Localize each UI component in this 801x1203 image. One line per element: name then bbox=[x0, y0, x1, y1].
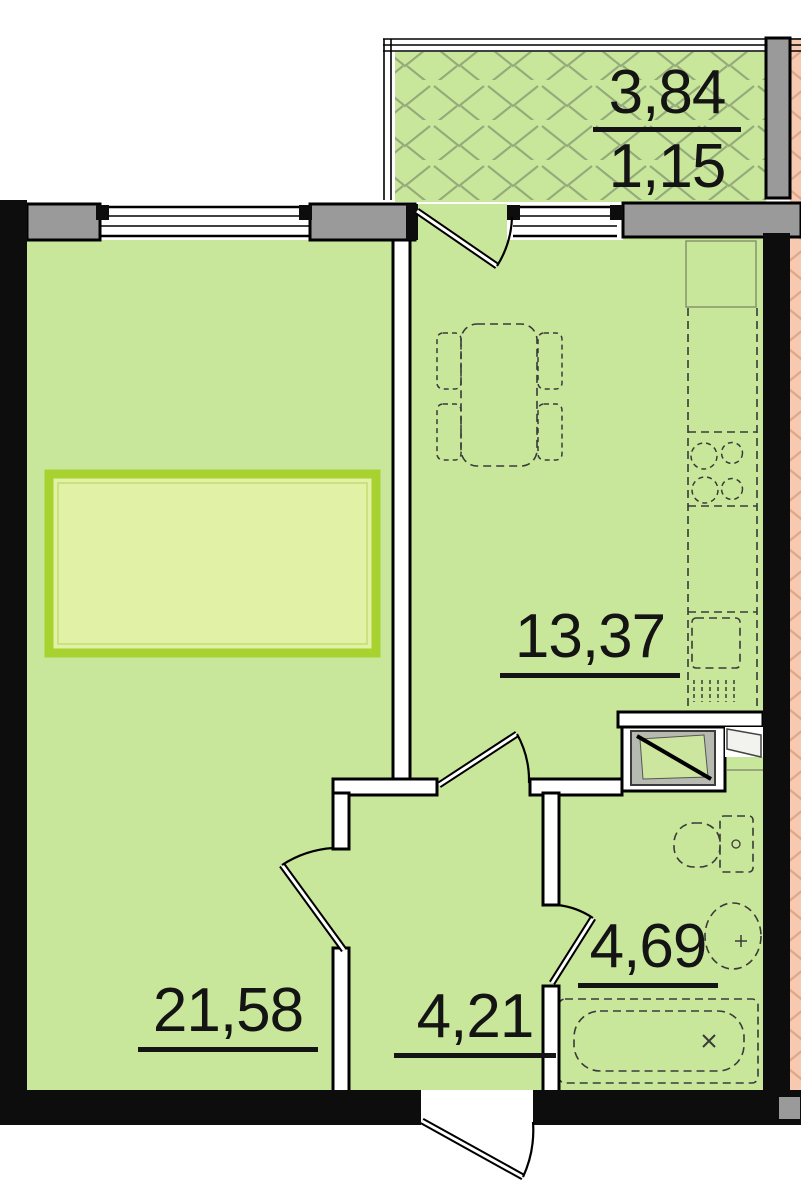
highlight-rect bbox=[49, 474, 376, 653]
wall-pier bbox=[310, 204, 415, 240]
bathroom-area-label: 4,69 bbox=[578, 916, 718, 988]
wall-pier bbox=[27, 204, 100, 240]
window-post bbox=[610, 205, 623, 220]
hall-area-label: 4,21 bbox=[394, 986, 556, 1058]
balcony-area-reduced: 1,15 bbox=[593, 132, 741, 198]
neighbor-balcony bbox=[790, 38, 801, 1090]
kitchen-area-label: 13,37 bbox=[500, 606, 680, 678]
entrance-door bbox=[422, 1121, 533, 1177]
room-area-label: 21,58 bbox=[138, 980, 318, 1052]
top-wall bbox=[27, 203, 801, 240]
window-post bbox=[299, 205, 312, 220]
balcony-area-total: 3,84 bbox=[593, 62, 741, 132]
gray-wall bbox=[623, 203, 801, 237]
balcony-divider-wall bbox=[766, 38, 790, 198]
balcony-area-label: 3,84 1,15 bbox=[593, 62, 741, 198]
floor-plan: 3,84 1,15 13,37 21,58 4,21 4,69 bbox=[0, 0, 801, 1203]
window-post bbox=[96, 205, 109, 220]
window-post bbox=[507, 205, 520, 220]
